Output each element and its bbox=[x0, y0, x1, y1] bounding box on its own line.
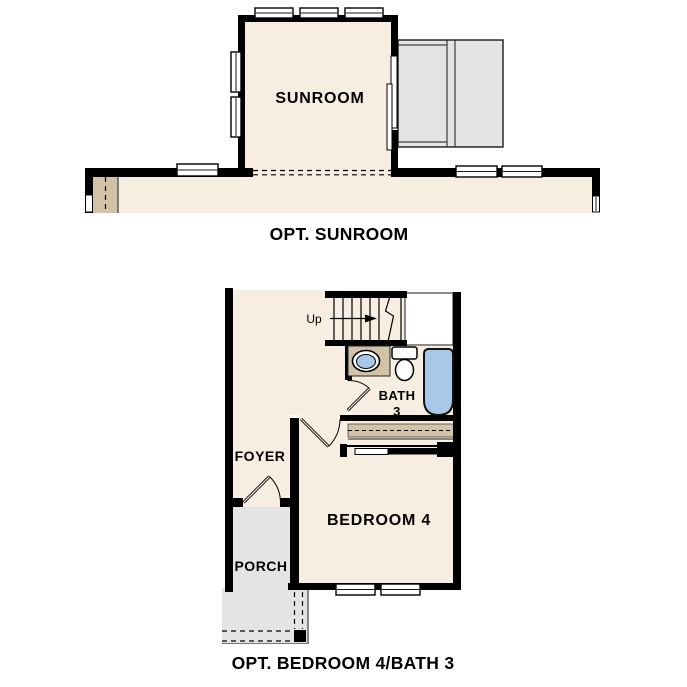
room-label-bath-number: 3 bbox=[393, 404, 401, 419]
room-label-bath: BATH bbox=[379, 388, 416, 403]
floor-area bbox=[93, 22, 592, 213]
room-label-porch: PORCH bbox=[234, 558, 287, 574]
stair-landing bbox=[405, 293, 453, 345]
floorplan-page: SUNROOM OPT. SUNROOM bbox=[0, 0, 687, 687]
room-label-bedroom4: BEDROOM 4 bbox=[327, 512, 431, 529]
bedroom4-plan: Up BATH 3 bbox=[222, 288, 461, 673]
stairs-up-label: Up bbox=[306, 312, 322, 326]
toilet-tank bbox=[392, 347, 417, 359]
sunroom-plan: SUNROOM OPT. SUNROOM bbox=[85, 8, 600, 244]
closet-bypass-door bbox=[355, 449, 388, 455]
sink-basin bbox=[357, 355, 376, 369]
room-label-foyer: FOYER bbox=[235, 448, 286, 464]
caption-opt-bedroom4-bath3: OPT. BEDROOM 4/BATH 3 bbox=[232, 653, 455, 673]
bathtub bbox=[424, 349, 453, 415]
sunroom-top-windows bbox=[255, 8, 383, 18]
caption-opt-sunroom: OPT. SUNROOM bbox=[270, 224, 409, 244]
deck-slab bbox=[398, 40, 503, 147]
porch-floor bbox=[233, 507, 290, 588]
toilet-bowl bbox=[396, 360, 414, 381]
window bbox=[86, 195, 93, 212]
room-label-sunroom: SUNROOM bbox=[275, 90, 364, 107]
deck bbox=[398, 40, 503, 147]
chimney bbox=[93, 177, 118, 213]
floorplan-canvas: SUNROOM OPT. SUNROOM bbox=[0, 0, 687, 687]
sliding-door-panel bbox=[387, 84, 392, 150]
